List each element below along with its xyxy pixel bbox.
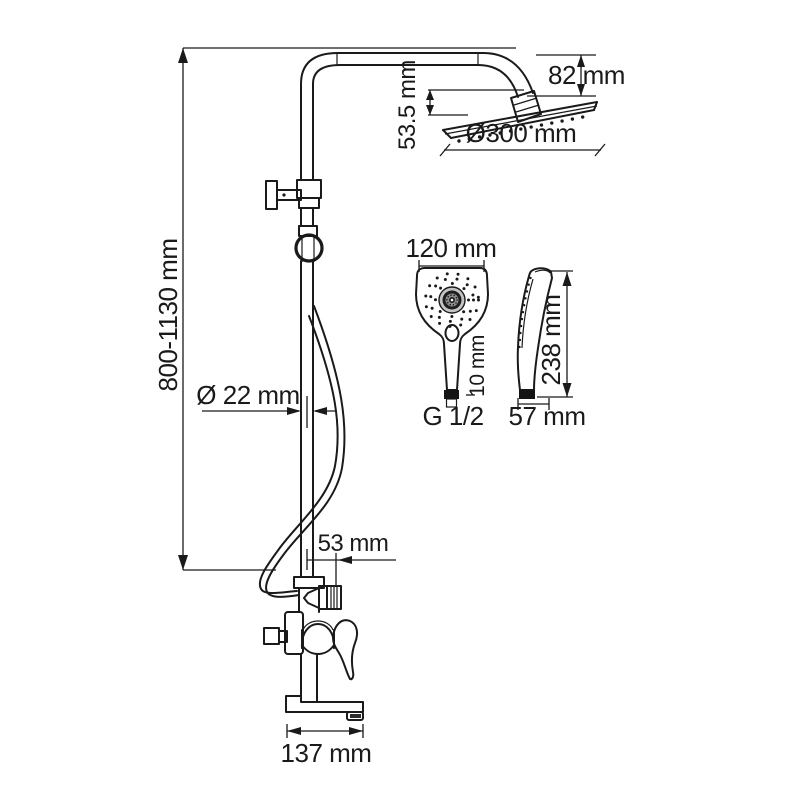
dimension-spout-reach: [287, 724, 363, 738]
swivel-joint: [296, 235, 322, 261]
label-arm-height: 82 mm: [548, 60, 625, 90]
label-head-drop: 53.5 mm: [394, 60, 421, 150]
label-pipe-diameter: Ø 22 mm: [196, 380, 299, 410]
label-connector-height: 10 mm: [466, 335, 489, 397]
mixer-body: [264, 577, 363, 720]
label-head-diameter: Ø300 mm: [466, 118, 577, 148]
label-hand-shower-width: 120 mm: [406, 233, 497, 263]
label-spout-reach: 137 mm: [281, 738, 372, 768]
label-thread: G 1/2: [422, 401, 483, 431]
label-hand-shower-depth: 57 mm: [509, 401, 586, 431]
label-hose-outlet-offset: 53 mm: [318, 530, 389, 557]
technical-drawing-page: 82 mm 53.5 mm Ø300 mm 800-1130 mm Ø 22 m…: [0, 0, 800, 800]
dimension-labels: 82 mm 53.5 mm Ø300 mm 800-1130 mm Ø 22 m…: [153, 60, 625, 768]
dimension-head-drop: [426, 90, 524, 115]
label-hand-shower-length: 238 mm: [536, 295, 566, 386]
wall-bracket: [266, 180, 321, 209]
label-column-height: 800-1130 mm: [153, 239, 183, 392]
shower-system-drawing: 82 mm 53.5 mm Ø300 mm 800-1130 mm Ø 22 m…: [0, 0, 800, 800]
